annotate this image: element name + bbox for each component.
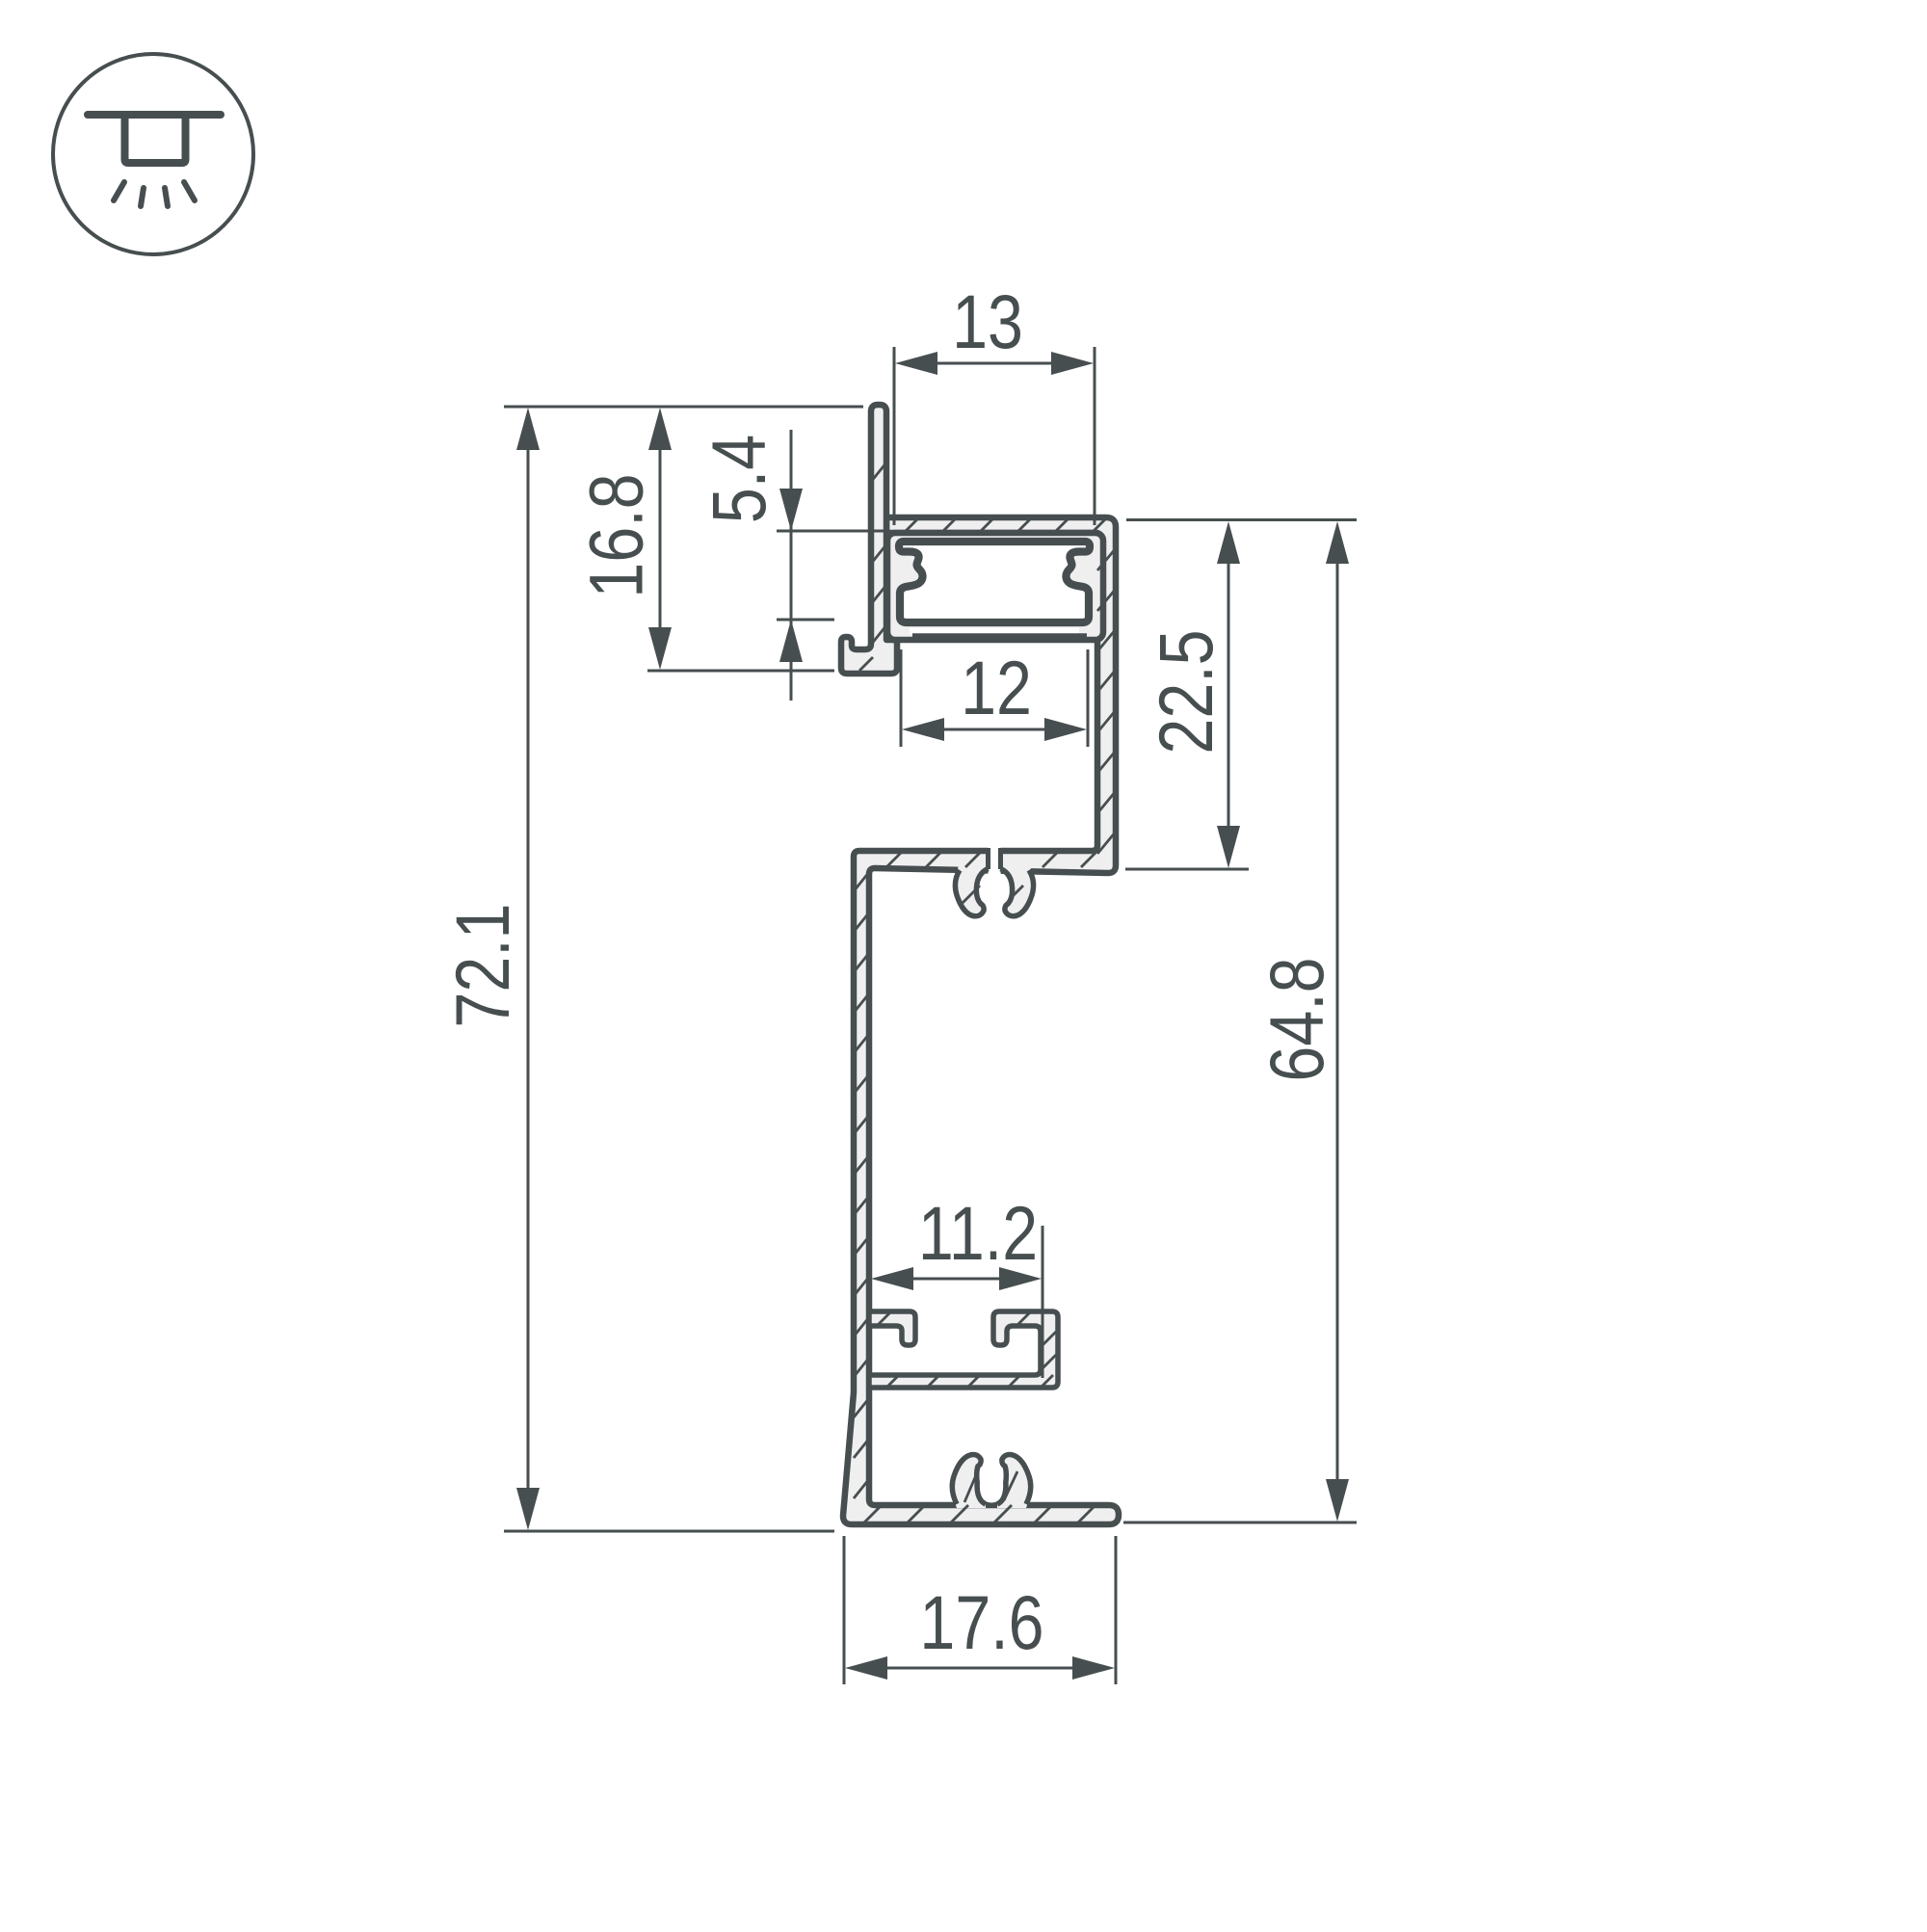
svg-text:11.2: 11.2 — [918, 1192, 1038, 1277]
svg-text:22.5: 22.5 — [1145, 629, 1229, 754]
svg-text:12: 12 — [961, 647, 1032, 731]
svg-text:17.6: 17.6 — [919, 1581, 1043, 1666]
svg-text:64.8: 64.8 — [1255, 957, 1340, 1081]
svg-text:16.8: 16.8 — [574, 473, 659, 597]
svg-text:72.1: 72.1 — [441, 903, 526, 1027]
svg-text:13: 13 — [952, 280, 1023, 365]
svg-text:5.4: 5.4 — [698, 435, 782, 523]
